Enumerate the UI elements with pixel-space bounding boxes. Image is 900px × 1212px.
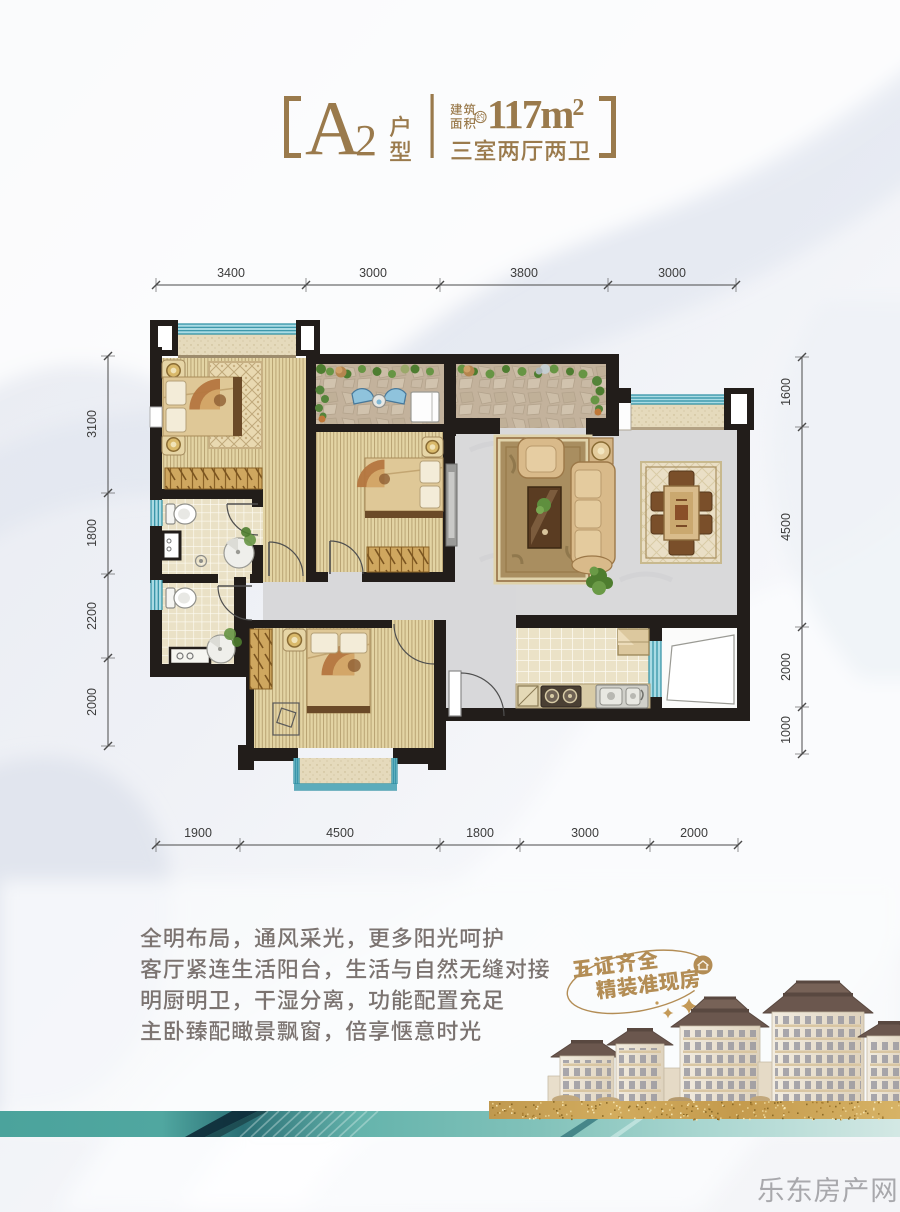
svg-text:1800: 1800 xyxy=(466,826,494,840)
svg-text:A: A xyxy=(305,85,361,171)
svg-text:2000: 2000 xyxy=(779,653,793,681)
svg-text:3000: 3000 xyxy=(658,266,686,280)
svg-text:2000: 2000 xyxy=(680,826,708,840)
svg-text:1000: 1000 xyxy=(779,716,793,744)
svg-text:3800: 3800 xyxy=(510,266,538,280)
svg-text:1900: 1900 xyxy=(184,826,212,840)
svg-text:2: 2 xyxy=(355,116,377,165)
svg-text:4500: 4500 xyxy=(779,513,793,541)
svg-text:3100: 3100 xyxy=(85,410,99,438)
svg-text:2000: 2000 xyxy=(85,688,99,716)
svg-text:3000: 3000 xyxy=(571,826,599,840)
svg-text:4500: 4500 xyxy=(326,826,354,840)
svg-text:1800: 1800 xyxy=(85,519,99,547)
svg-text:3000: 3000 xyxy=(359,266,387,280)
svg-text:3400: 3400 xyxy=(217,266,245,280)
svg-text:2200: 2200 xyxy=(85,602,99,630)
svg-text:117m2: 117m2 xyxy=(487,91,583,137)
svg-text:1600: 1600 xyxy=(779,378,793,406)
